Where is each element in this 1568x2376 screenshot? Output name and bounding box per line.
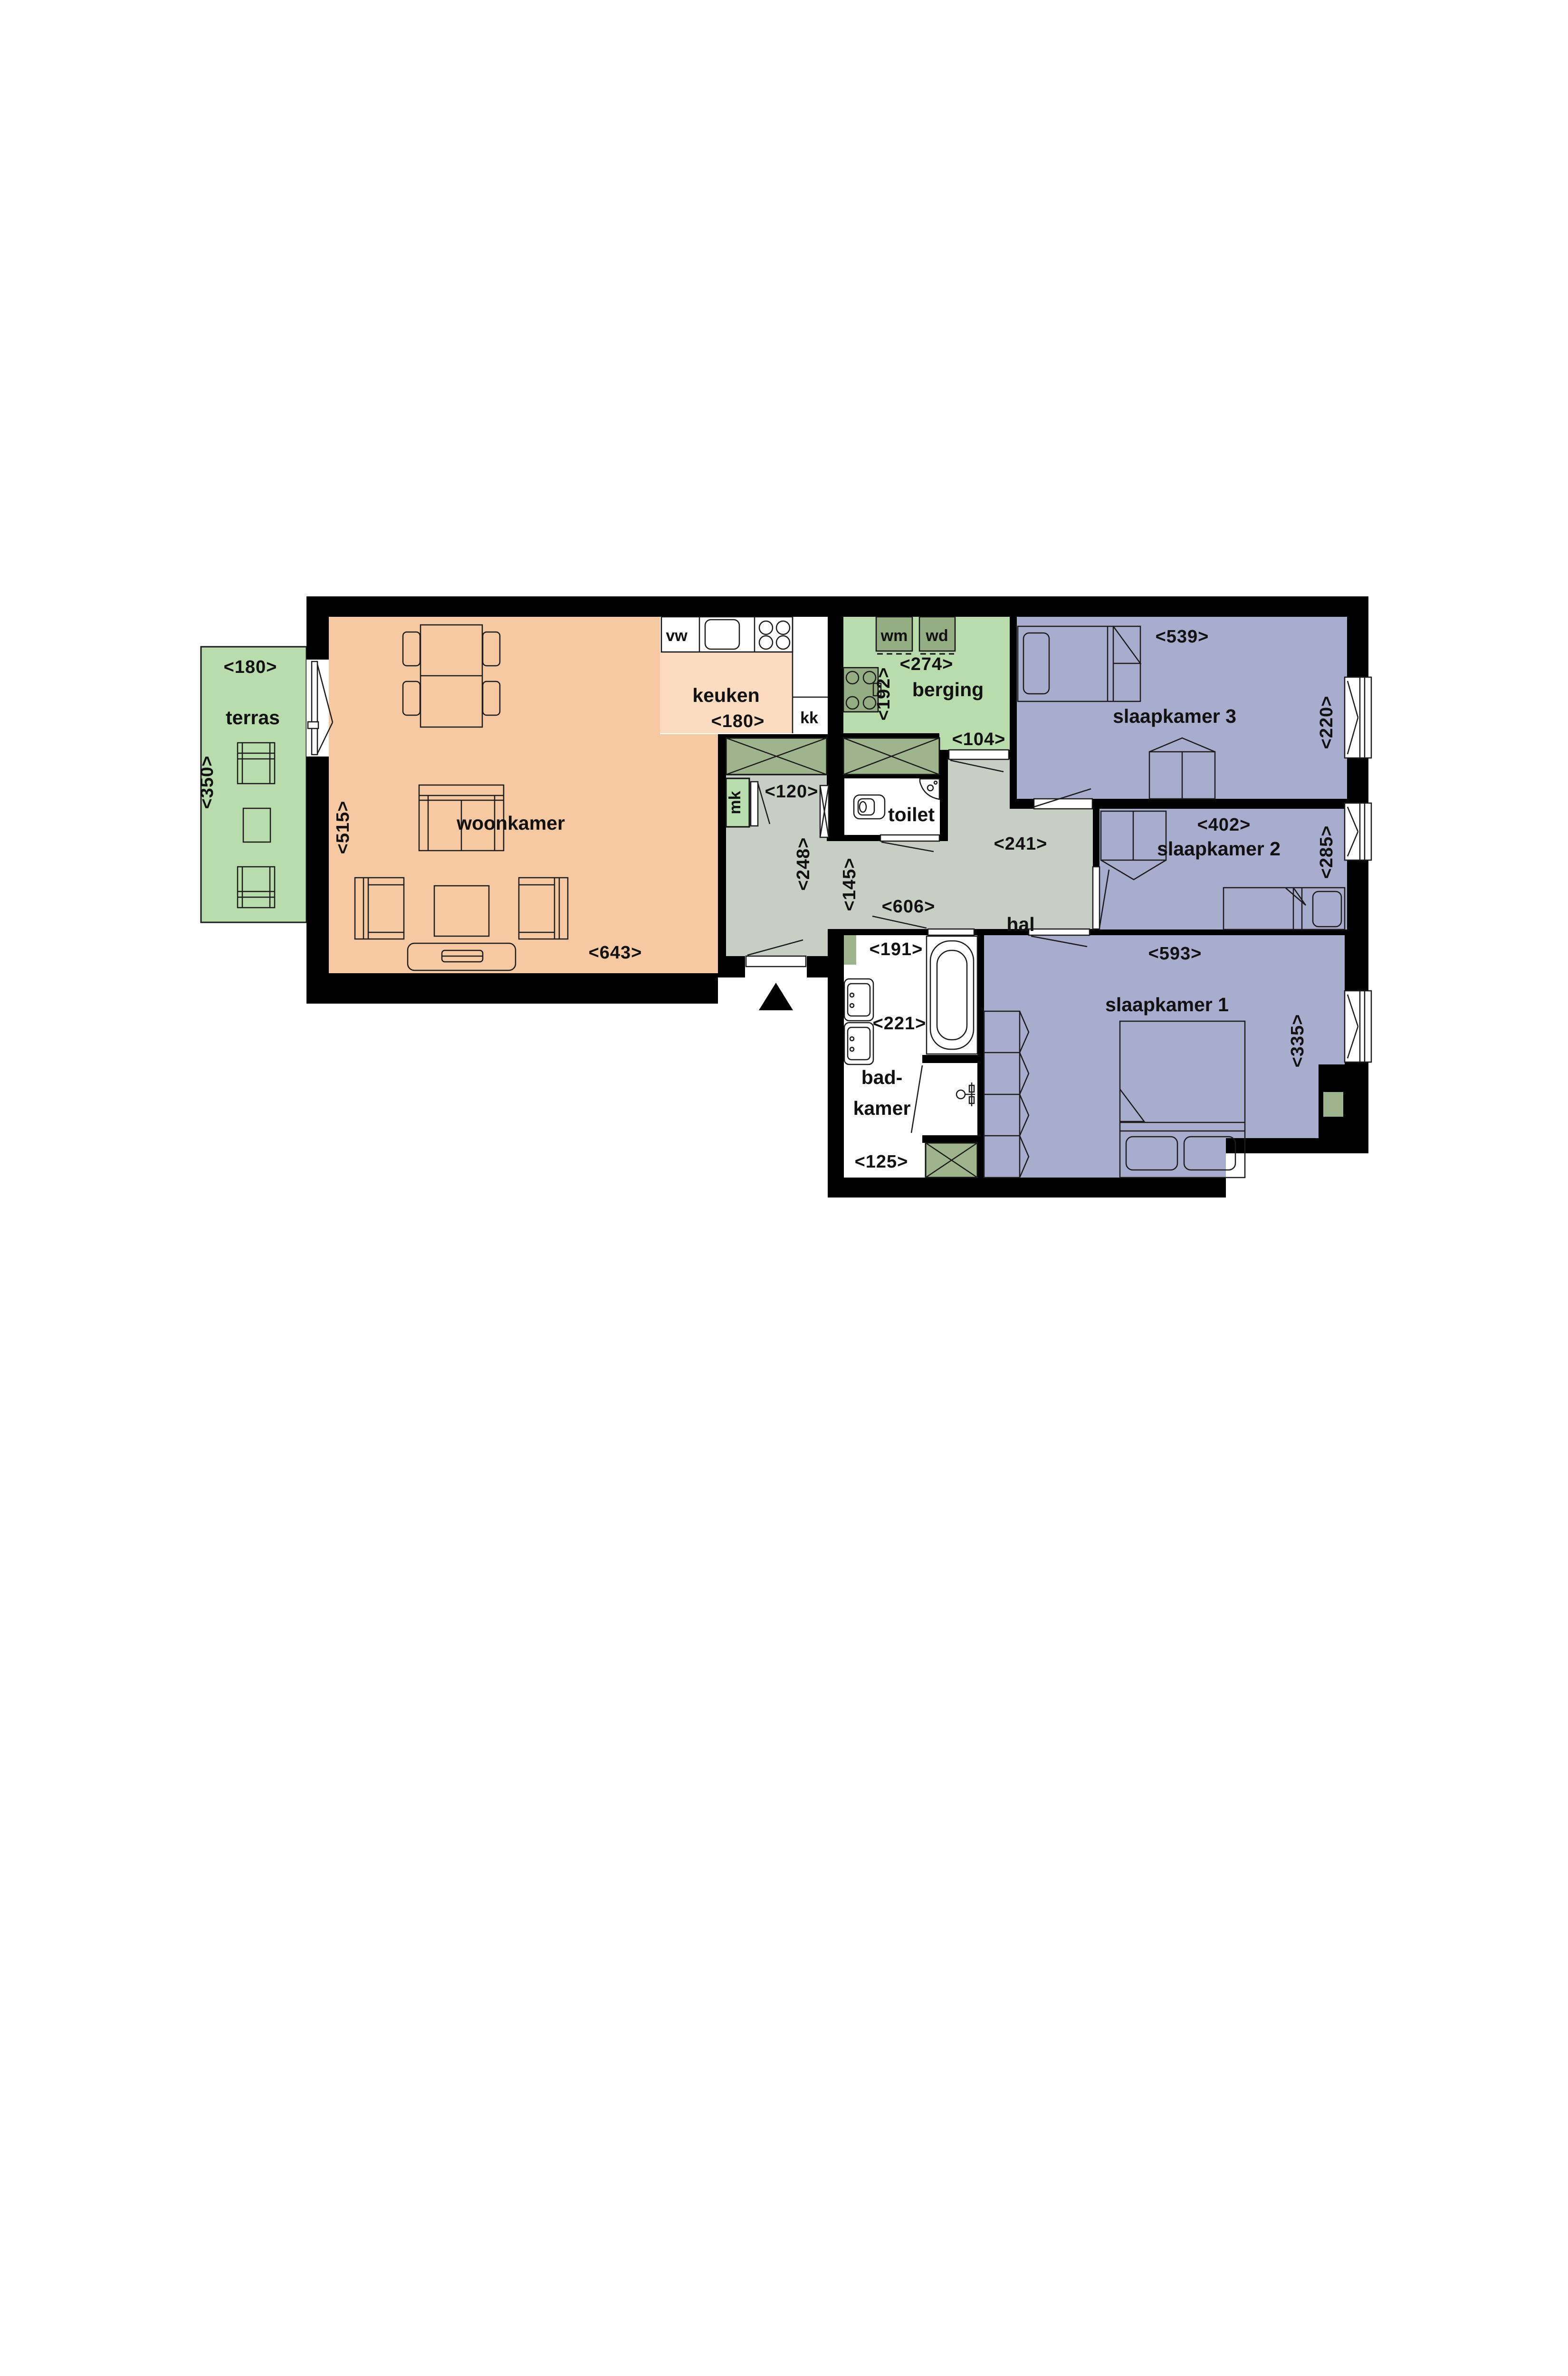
keuken-label: keuken: [692, 684, 759, 706]
hal-dim-145: <145>: [840, 858, 860, 911]
toilet-wall-panel: [820, 786, 829, 837]
window-slaapkamer2: [1345, 803, 1371, 860]
woonkamer-label: woonkamer: [456, 812, 565, 834]
badkamer-dim-221: <221>: [873, 1014, 927, 1034]
woonkamer-dim-w: <643>: [589, 943, 642, 963]
terras-dim-h: <350>: [197, 756, 217, 809]
badkamer-label-line2: kamer: [853, 1097, 911, 1119]
shaft-left: [726, 738, 827, 775]
slaapkamer1-dim-w: <593>: [1148, 944, 1202, 964]
badkamer-label-line1: bad-: [861, 1066, 903, 1088]
badkamer-dim-191: <191>: [870, 939, 923, 959]
dishwasher-label: vw: [666, 627, 688, 645]
slaapkamer3-label: slaapkamer 3: [1113, 705, 1236, 727]
berging-dim-pass: <104>: [952, 729, 1006, 749]
shower-wall-top: [922, 1055, 977, 1063]
window-slaapkamer3: [1345, 677, 1371, 758]
berging-dim-h: <192>: [874, 667, 894, 721]
shaft-badkamer-corner: [844, 935, 856, 965]
wd-label: wd: [925, 627, 948, 645]
floor-plan: <180> terras <350> woonkamer <515> <643>…: [0, 0, 1568, 2376]
shaft-se-corner: [1323, 1092, 1343, 1117]
shaft-middle: [843, 738, 939, 775]
terras-label: terras: [226, 707, 280, 728]
hal-dim-120: <120>: [765, 782, 819, 802]
wm-label: wm: [880, 627, 908, 645]
slaapkamer2-dim-w: <402>: [1197, 815, 1251, 835]
hal-dim-241: <241>: [994, 834, 1048, 854]
hal-label: hal: [1006, 913, 1034, 935]
woonkamer-dim-h: <515>: [333, 801, 353, 854]
shaft-bathroom: [926, 1143, 977, 1178]
berging-label: berging: [912, 679, 984, 700]
window-slaapkamer1: [1345, 991, 1371, 1062]
mk-door-leaf: [751, 782, 758, 826]
room-woonkamer: [329, 617, 718, 973]
fridge-label: kk: [800, 709, 818, 727]
hal-dim-606: <606>: [882, 897, 936, 917]
slaapkamer1-label: slaapkamer 1: [1105, 994, 1229, 1016]
slaapkamer3-dim-h: <220>: [1317, 696, 1337, 749]
badkamer-dim-125: <125>: [855, 1152, 908, 1172]
slaapkamer2-label: slaapkamer 2: [1157, 838, 1281, 860]
slaapkamer2-dim-h: <285>: [1317, 825, 1337, 879]
toilet-label: toilet: [888, 804, 935, 825]
balcony-door: [306, 660, 333, 757]
slaapkamer3-dim-w: <539>: [1156, 627, 1209, 647]
mk-label: mk: [726, 791, 744, 814]
keuken-dim-w: <180>: [711, 711, 765, 731]
floorplan-page: { "fp": { "colors": { "wall": "#000000",…: [0, 0, 1568, 2376]
terras-dim-w: <180>: [224, 657, 277, 677]
berging-dim-w: <274>: [900, 654, 954, 674]
hal-dim-248: <248>: [794, 837, 813, 891]
entrance-arrow-icon: [759, 983, 793, 1010]
shower-wall-bottom: [922, 1135, 977, 1143]
slaapkamer1-dim-h: <335>: [1288, 1014, 1308, 1068]
